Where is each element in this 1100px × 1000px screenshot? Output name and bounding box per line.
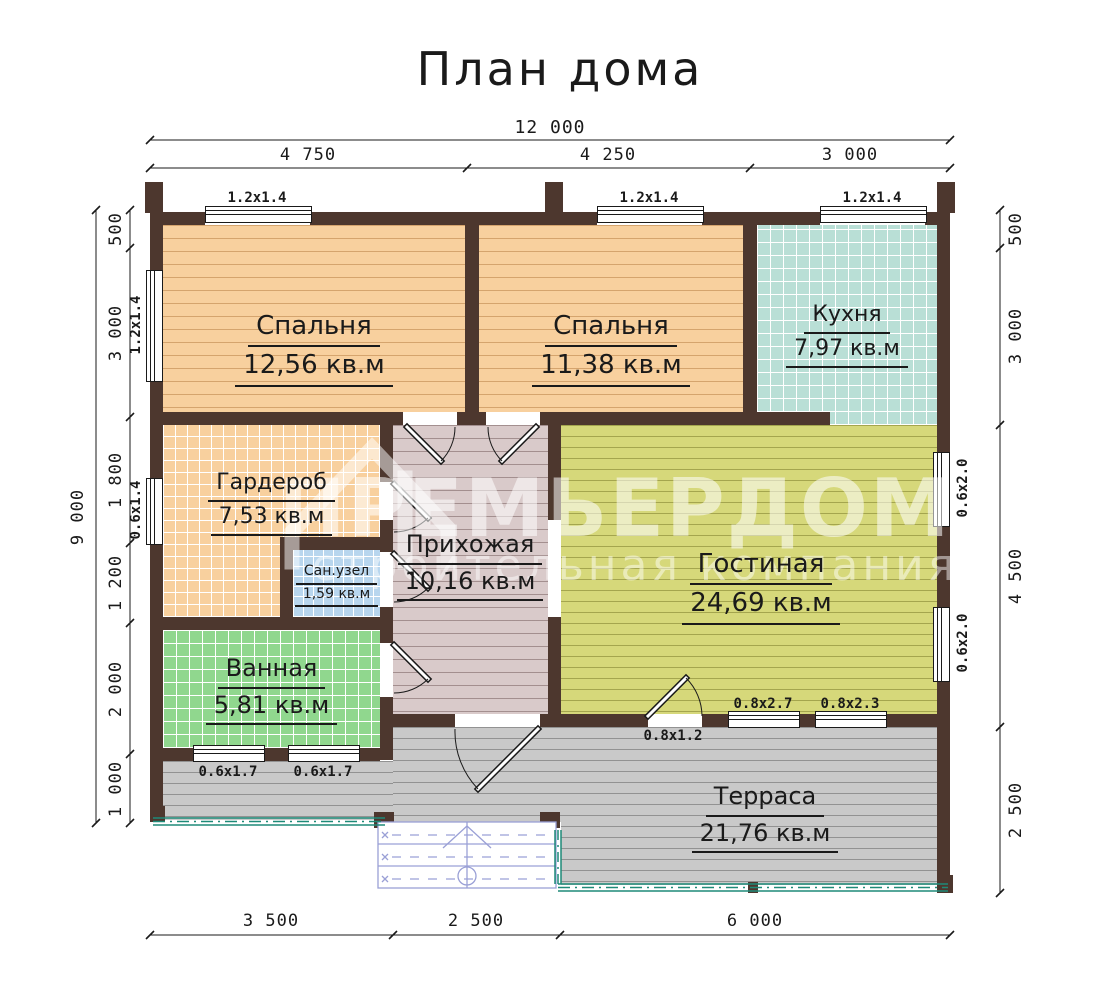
room-label-bedroom1: Спальня12,56 кв.м [163,308,465,387]
wall-house-bottom [885,714,937,727]
room-label-bathroom: Ванная5,81 кв.м [163,652,380,725]
room-label-bedroom2: Спальня11,38 кв.м [479,308,743,387]
wall-bathroom-bottom [263,748,288,761]
stairs [378,822,556,888]
wall-top [310,212,597,225]
terrace-post [937,875,953,893]
wall-wardrobe-hallway [380,697,393,760]
wall-sanuzel [280,550,293,617]
room-label-sanuzel: Сан.узел1,59 кв.м [293,562,380,607]
terrace-floor-center [393,727,561,822]
wall-house-bottom [702,714,728,727]
window-size-label: 1.2x1.4 [609,190,689,206]
room-label-living: Гостиная24,69 кв.м [601,546,921,625]
window-size-label: 1.2x1.4 [128,275,144,375]
wall-left [150,212,163,270]
terrace-post [150,806,165,822]
dim-right-segment: 3 000 [1006,266,1026,406]
dim-top-total: 12 000 [480,117,620,138]
terrace-post [748,882,758,893]
dim-left-segment: 3 000 [106,263,126,403]
dim-left-total: 9 000 [68,447,88,587]
wall-hallway-living [548,617,561,727]
terrace-post [374,812,394,828]
window-size-label: 0.6x2.0 [955,593,971,693]
dim-bottom-segment: 6 000 [685,911,825,931]
window-size-label: 0.6x2.0 [955,438,971,538]
window-size-label: 1.2x1.4 [217,190,297,206]
dim-top-segment: 3 000 [780,145,920,165]
wall-right [937,680,950,893]
window-size-label: 0.6x1.7 [283,764,363,780]
room-label-hallway: Прихожая10,16 кв.м [385,528,555,601]
wall-house-bottom [540,714,648,727]
window-bedroom1-top [205,206,312,223]
wall-top [702,212,820,225]
page-title: План дома [250,42,870,96]
dim-top-segment: 4 250 [538,145,678,165]
wall-left [150,543,163,812]
wall-house-bottom [393,714,455,727]
window-size-label: 0.6x1.4 [128,460,144,560]
room-label-wardrobe: Гардероб7,53 кв.м [163,468,380,536]
wall-bedroom2-kitchen [743,225,757,412]
dim-left-segment: 1 000 [106,719,126,859]
wall-bedroom1-bedroom2 [465,225,479,412]
wall-left [150,380,163,478]
dim-right-segment: 4 500 [1006,506,1026,646]
wall-bedrooms-bottom [457,412,486,425]
wall-bedrooms-bottom [163,412,403,425]
window-kitchen-top [820,206,927,223]
wall-house-bottom [798,714,815,727]
wall-bathroom-bottom [358,748,380,761]
corner-post [545,182,563,213]
window-size-label: 0.8x2.7 [723,696,803,712]
wall-wardrobe-hallway [380,607,393,643]
window-wardrobe-left [146,478,163,545]
window-bedroom2-top [597,206,704,223]
window-bathroom-1 [193,745,265,762]
room-label-kitchen: Кухня7,97 кв.м [757,300,937,368]
wall-bedrooms-bottom [540,412,830,425]
terrace-post [540,812,560,828]
dim-bottom-segment: 3 500 [201,911,341,931]
window-bathroom-2 [288,745,360,762]
window-living-right-2 [933,607,950,682]
wall-bathroom-bottom [150,748,193,761]
dim-top-segment: 4 750 [238,145,378,165]
corner-post [937,182,955,213]
wall-right [937,212,950,452]
window-living-bottom-2 [815,711,887,728]
window-size-label: 1.2x1.4 [832,190,912,206]
corner-post [145,182,163,213]
room-label-terrace: Терраса21,76 кв.м [600,780,930,853]
floor-plan-page: { "title": "План дома", "watermark": { "… [0,0,1100,1000]
dim-right-segment: 2 500 [1006,740,1026,880]
window-size-label: 0.8x2.3 [810,696,890,712]
wall-wardrobe-bathroom [163,617,380,630]
window-living-bottom-1 [728,711,800,728]
dim-bottom-segment: 2 500 [406,911,546,931]
window-bedroom1-left [146,270,163,382]
door-size-label: 0.8x1.2 [633,728,713,744]
window-size-label: 0.6x1.7 [188,764,268,780]
